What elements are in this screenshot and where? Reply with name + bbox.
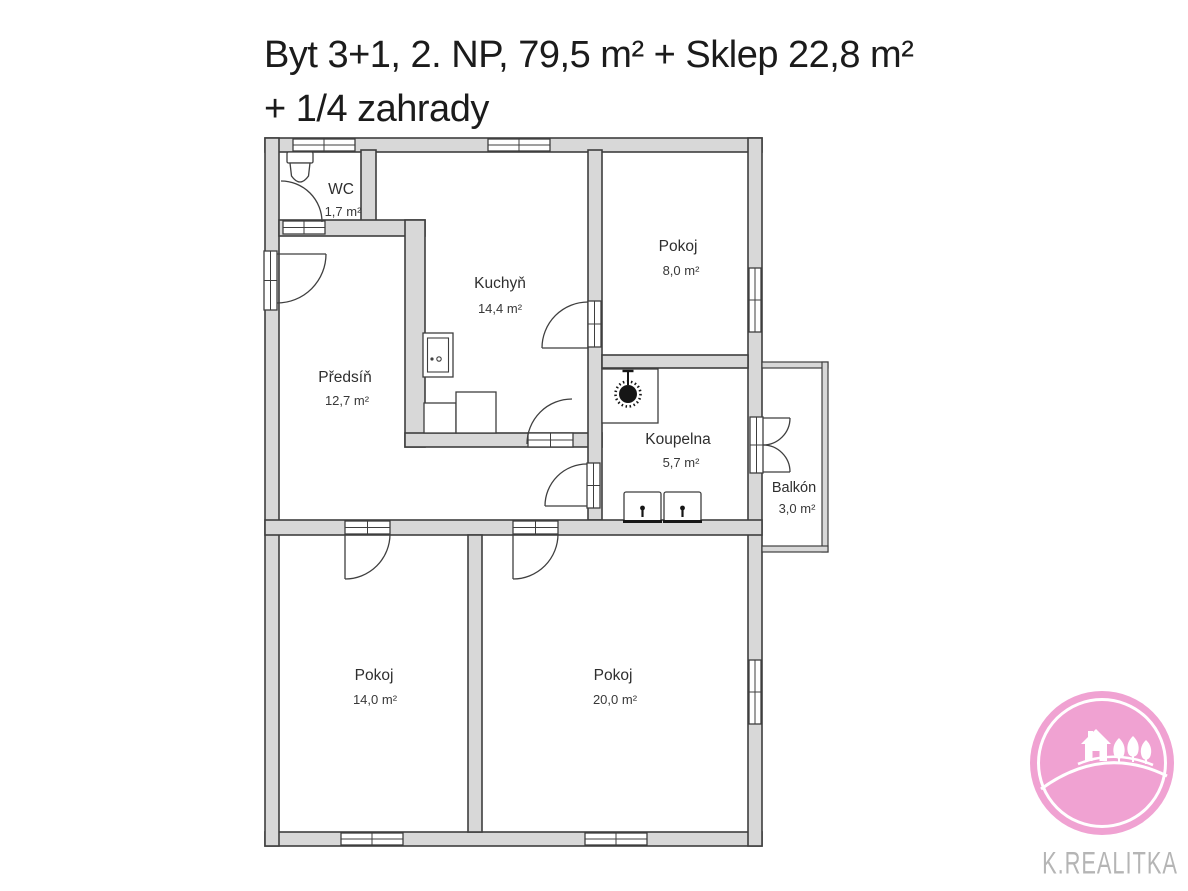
door-threshold: [513, 521, 558, 534]
door-swing-arc: [281, 181, 322, 222]
window: [749, 268, 761, 332]
room-name-pokoj-14: Pokoj: [355, 667, 394, 684]
wall-segment: [602, 355, 748, 368]
shower-icon: [602, 369, 658, 423]
balcony-rail: [762, 546, 828, 552]
room-name-pokoj-20: Pokoj: [594, 667, 633, 684]
door-threshold: [750, 417, 763, 473]
door-swing-arc: [513, 534, 558, 579]
door-threshold: [588, 301, 601, 347]
door-swing-arc: [345, 534, 390, 579]
door-threshold: [345, 521, 390, 534]
room-name-balkon: Balkón: [772, 480, 816, 496]
room-area-wc: 1,7 m²: [325, 204, 363, 219]
window: [488, 139, 550, 151]
wall-segment: [361, 150, 376, 228]
walls: [265, 138, 828, 846]
balcony-rail: [822, 362, 828, 552]
room-name-predsin: Předsíň: [318, 369, 371, 386]
agency-logo: [1030, 691, 1174, 835]
window: [341, 833, 403, 845]
door-swing-arc: [763, 418, 790, 445]
door-swing-arc: [542, 302, 588, 348]
kitchen-counter: [424, 392, 496, 433]
balcony-rail: [762, 362, 828, 368]
toilet-icon: [287, 152, 313, 182]
room-name-pokoj-8: Pokoj: [659, 238, 698, 255]
door-swing-arc: [763, 445, 790, 472]
door-swing-arc: [277, 254, 326, 303]
wall-segment: [468, 535, 482, 832]
floor-plan-page: Byt 3+1, 2. NP, 79,5 m² + Sklep 22,8 m² …: [0, 0, 1188, 891]
room-area-koupelna: 5,7 m²: [663, 455, 701, 470]
wall-segment: [748, 138, 762, 846]
room-area-pokoj-14: 14,0 m²: [353, 692, 398, 707]
stove-icon: [423, 333, 453, 377]
room-area-kuchyn: 14,4 m²: [478, 301, 523, 316]
door-threshold: [528, 433, 573, 447]
sink-icon: [623, 492, 662, 522]
wall-segment: [265, 832, 762, 846]
wall-segment: [265, 138, 279, 846]
room-area-predsin: 12,7 m²: [325, 393, 370, 408]
room-name-wc: WC: [328, 181, 354, 198]
sink-icon: [663, 492, 702, 522]
floor-plan-drawing: WC 1,7 m² Kuchyň 14,4 m² Pokoj 8,0 m² Př…: [0, 0, 1188, 891]
room-area-pokoj-8: 8,0 m²: [663, 263, 701, 278]
wall-segment: [405, 220, 425, 447]
window: [293, 139, 355, 151]
agency-logo-text: K.REALITKA: [1034, 845, 1186, 881]
room-name-kuchyn: Kuchyň: [474, 275, 526, 292]
room-name-koupelna: Koupelna: [645, 431, 711, 448]
door-swing-arc: [545, 464, 587, 506]
window: [585, 833, 647, 845]
window: [749, 660, 761, 724]
door-threshold: [283, 221, 325, 234]
room-area-pokoj-20: 20,0 m²: [593, 692, 638, 707]
door-threshold: [587, 463, 600, 508]
room-area-balkon: 3,0 m²: [779, 501, 817, 516]
door-threshold: [264, 251, 277, 310]
